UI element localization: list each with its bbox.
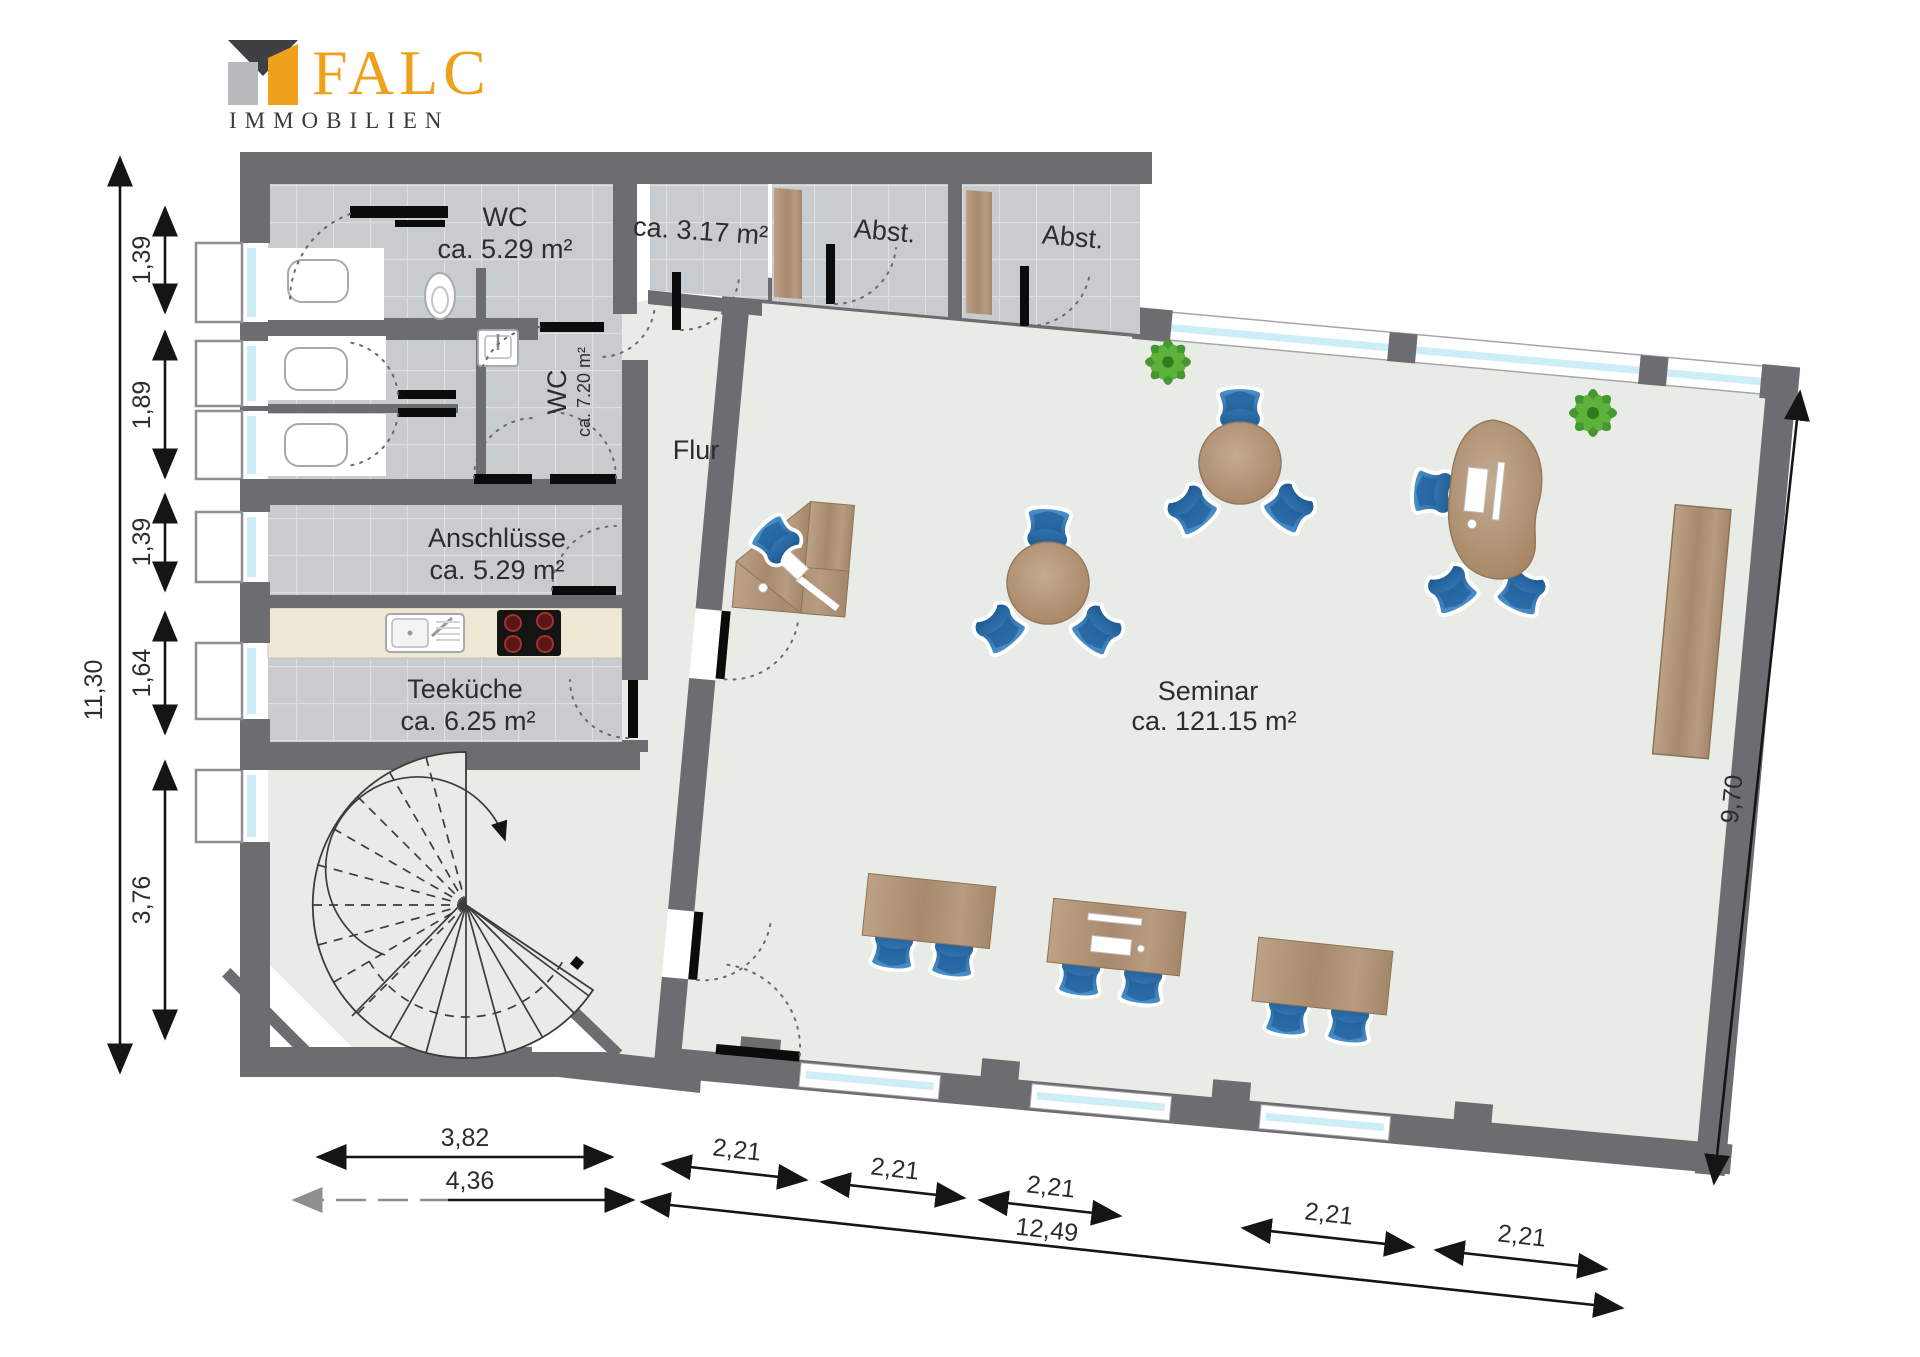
dim-bottom-seg-3: 2,21 — [1025, 1170, 1077, 1203]
label-wc-top-area: ca. 5.29 m² — [437, 234, 572, 264]
dim-left-seg-4: 1,64 — [128, 649, 156, 698]
dim-left-seg-1: 1,39 — [128, 236, 156, 285]
dim-left-seg-3: 1,39 — [128, 518, 156, 567]
floorplan-page: FALC IMMOBILIEN — [0, 0, 1920, 1357]
window — [196, 770, 257, 842]
dim-right-total: 9,70 — [1716, 773, 1749, 824]
label-teekueche-area: ca. 6.25 m² — [400, 706, 535, 736]
label-flur: Flur — [673, 435, 720, 465]
dim-bottom-left-outer: 4,36 — [446, 1167, 495, 1195]
plant — [1569, 389, 1617, 437]
svg-text:WC: WC — [542, 370, 572, 415]
window — [196, 643, 257, 719]
toilet — [288, 260, 348, 302]
logo-mark-gray-block — [228, 62, 258, 105]
abst1-shelf — [774, 188, 802, 299]
label-abst-1: Abst. — [853, 213, 917, 248]
label-abst-2: Abst. — [1041, 219, 1105, 254]
label-seminar-area: ca. 121.15 m² — [1131, 706, 1296, 736]
window — [196, 243, 257, 322]
dim-bottom-seg-1: 2,21 — [711, 1133, 763, 1166]
svg-text:ca. 7.20 m²: ca. 7.20 m² — [574, 347, 594, 437]
toilet — [285, 348, 347, 390]
label-anschluesse: Anschlüsse — [428, 523, 566, 553]
keyboard — [1464, 467, 1488, 513]
label-anschluesse-area: ca. 5.29 m² — [429, 555, 564, 585]
window — [196, 341, 257, 406]
dim-left-seg-2: 1,89 — [128, 381, 156, 430]
dim-bottom-seg-2: 2,21 — [869, 1152, 921, 1185]
abst2-shelf — [966, 190, 992, 315]
floorplan-svg: FALC IMMOBILIEN — [0, 0, 1920, 1357]
mouse — [1468, 520, 1477, 529]
mouse — [1137, 945, 1145, 953]
window — [196, 411, 257, 479]
label-wc-top: WC — [483, 202, 528, 232]
dim-bottom-seg-4: 2,21 — [1303, 1197, 1355, 1230]
label-teekueche: Teeküche — [407, 674, 523, 704]
outer-top-wall — [240, 152, 1152, 184]
window — [196, 512, 257, 582]
mouse — [758, 583, 768, 593]
logo-brand-text: FALC — [312, 37, 491, 108]
table-top — [1007, 542, 1089, 624]
label-seminar: Seminar — [1158, 676, 1259, 706]
logo-subtitle-text: IMMOBILIEN — [229, 108, 450, 133]
dim-left-total: 11,30 — [80, 660, 108, 721]
toilet — [285, 424, 347, 466]
falc-logo: FALC IMMOBILIEN — [228, 37, 491, 133]
dim-bottom-left-inner: 3,82 — [441, 1124, 490, 1152]
plant — [1145, 339, 1191, 385]
table-top — [1199, 422, 1281, 504]
dim-bottom-seg-5: 2,21 — [1496, 1219, 1548, 1252]
dim-left-seg-5: 3,76 — [128, 876, 156, 925]
